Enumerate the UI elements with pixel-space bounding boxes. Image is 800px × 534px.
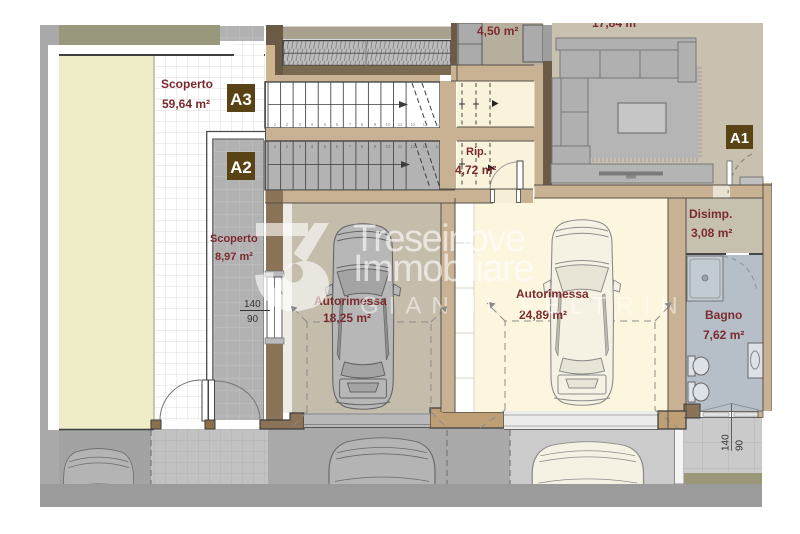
svg-text:4,72 m²: 4,72 m² [455, 163, 496, 177]
svg-text:13: 13 [423, 144, 428, 149]
svg-text:11: 11 [398, 144, 403, 149]
svg-text:7,62 m²: 7,62 m² [703, 328, 744, 342]
svg-text:13: 13 [423, 122, 428, 127]
svg-text:Disimp.: Disimp. [689, 207, 732, 221]
svg-text:A2: A2 [230, 158, 252, 177]
svg-text:90: 90 [247, 314, 259, 325]
svg-text:10: 10 [386, 122, 391, 127]
svg-text:4,50 m²: 4,50 m² [477, 24, 518, 38]
svg-text:Scoperto: Scoperto [210, 233, 258, 245]
svg-text:140: 140 [721, 434, 732, 451]
svg-text:8,97 m²: 8,97 m² [215, 251, 253, 263]
svg-text:11: 11 [398, 122, 403, 127]
svg-text:Bagno: Bagno [705, 308, 742, 322]
svg-text:A3: A3 [230, 90, 252, 109]
svg-text:GIANNI FELTRIN: GIANNI FELTRIN [360, 293, 688, 320]
svg-text:90: 90 [735, 439, 746, 451]
svg-text:140: 140 [244, 299, 261, 310]
svg-text:Immobiliare: Immobiliare [353, 248, 533, 290]
svg-text:59,64 m²: 59,64 m² [162, 97, 210, 111]
svg-text:3,08 m²: 3,08 m² [691, 226, 732, 240]
svg-text:Rip.: Rip. [466, 146, 487, 158]
svg-text:10: 10 [386, 144, 391, 149]
svg-text:A1: A1 [730, 130, 749, 147]
svg-text:12: 12 [411, 144, 416, 149]
svg-text:Scoperto: Scoperto [161, 77, 213, 91]
svg-text:12: 12 [411, 122, 416, 127]
